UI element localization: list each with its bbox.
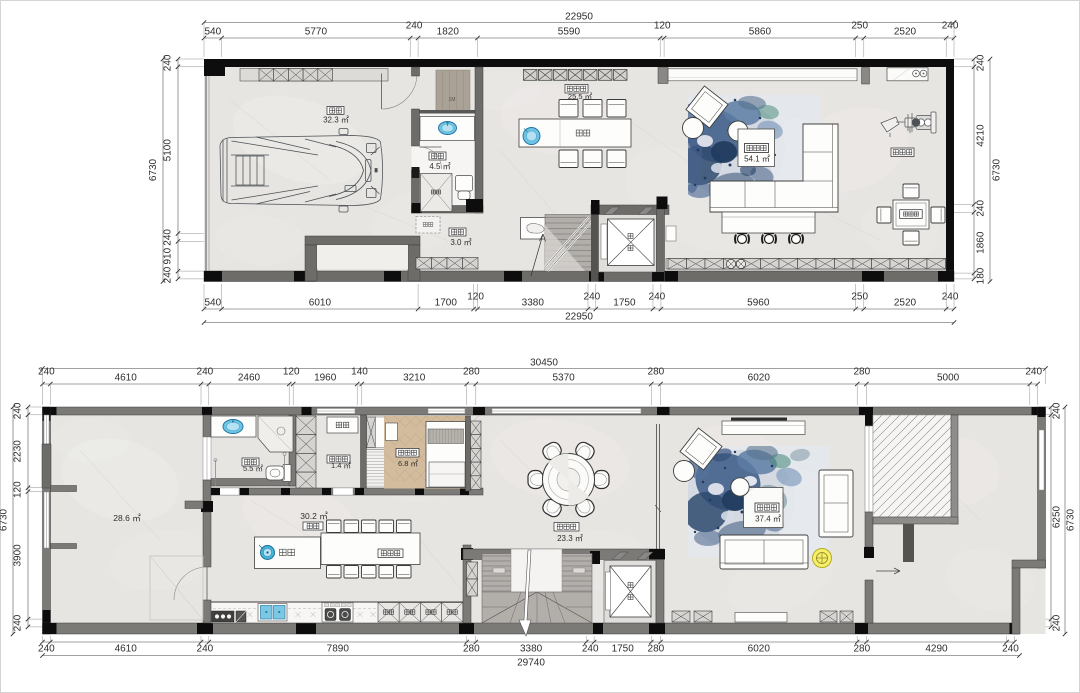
svg-text:1960: 1960	[314, 373, 337, 384]
svg-text:29740: 29740	[517, 658, 545, 669]
svg-text:280: 280	[463, 644, 480, 655]
svg-text:4210: 4210	[976, 124, 987, 147]
svg-text:4290: 4290	[925, 644, 948, 655]
svg-text:240: 240	[942, 292, 959, 303]
svg-text:28.6 ㎡: 28.6 ㎡	[113, 513, 141, 523]
svg-text:5960: 5960	[747, 298, 770, 309]
svg-text:3380: 3380	[520, 644, 543, 655]
svg-text:910: 910	[163, 247, 174, 264]
svg-text:6730: 6730	[0, 508, 10, 531]
svg-text:250: 250	[851, 21, 868, 32]
svg-text:3380: 3380	[522, 298, 545, 309]
svg-text:1M: 1M	[449, 97, 456, 103]
svg-text:240: 240	[976, 200, 987, 217]
svg-text:280: 280	[648, 644, 665, 655]
svg-text:2230: 2230	[13, 440, 24, 463]
svg-text:120: 120	[654, 21, 671, 32]
svg-text:6730: 6730	[1066, 508, 1077, 531]
svg-text:240: 240	[197, 367, 214, 378]
svg-text:3210: 3210	[403, 373, 426, 384]
svg-text:240: 240	[649, 292, 666, 303]
svg-text:240: 240	[976, 54, 987, 71]
svg-text:240: 240	[1002, 644, 1019, 655]
svg-text:280: 280	[853, 367, 870, 378]
svg-text:54.1 ㎡: 54.1 ㎡	[744, 155, 770, 164]
svg-text:240: 240	[197, 644, 214, 655]
svg-text:240: 240	[1052, 402, 1063, 419]
svg-text:240: 240	[1025, 367, 1042, 378]
svg-text:7890: 7890	[327, 644, 350, 655]
svg-text:120: 120	[467, 292, 484, 303]
svg-text:6730: 6730	[148, 158, 159, 181]
svg-text:250: 250	[851, 292, 868, 303]
svg-text:22950: 22950	[565, 12, 593, 23]
svg-text:32.3 ㎡: 32.3 ㎡	[323, 116, 349, 125]
svg-text:4610: 4610	[115, 644, 138, 655]
svg-text:5860: 5860	[749, 27, 772, 38]
svg-text:120: 120	[13, 481, 24, 498]
svg-text:1750: 1750	[612, 644, 635, 655]
svg-text:240: 240	[406, 21, 423, 32]
svg-text:280: 280	[853, 644, 870, 655]
svg-text:240: 240	[13, 402, 24, 419]
svg-text:1700: 1700	[435, 298, 458, 309]
svg-text:5000: 5000	[937, 373, 960, 384]
svg-text:4.5 ㎡: 4.5 ㎡	[429, 162, 450, 171]
svg-text:5770: 5770	[305, 27, 328, 38]
svg-text:280: 280	[463, 367, 480, 378]
svg-text:3.0 ㎡: 3.0 ㎡	[450, 238, 471, 247]
svg-text:6730: 6730	[992, 158, 1003, 181]
svg-text:240: 240	[163, 229, 174, 246]
svg-text:1750: 1750	[613, 298, 636, 309]
svg-text:240: 240	[13, 614, 24, 631]
svg-text:5.5 ㎡: 5.5 ㎡	[243, 464, 264, 473]
svg-text:2520: 2520	[894, 27, 917, 38]
svg-text:5590: 5590	[558, 27, 581, 38]
svg-text:1820: 1820	[437, 27, 460, 38]
svg-text:280: 280	[648, 367, 665, 378]
svg-text:120: 120	[283, 367, 300, 378]
svg-text:6010: 6010	[309, 298, 332, 309]
svg-text:4610: 4610	[115, 373, 138, 384]
svg-text:240: 240	[582, 644, 599, 655]
svg-text:3900: 3900	[13, 544, 24, 567]
svg-text:6250: 6250	[1052, 505, 1063, 528]
svg-text:23.3 ㎡: 23.3 ㎡	[557, 534, 583, 543]
svg-text:2460: 2460	[238, 373, 261, 384]
svg-text:1860: 1860	[976, 231, 987, 254]
svg-text:240: 240	[38, 644, 55, 655]
svg-text:37.4 ㎡: 37.4 ㎡	[755, 515, 781, 524]
svg-text:2520: 2520	[894, 298, 917, 309]
svg-text:240: 240	[38, 367, 55, 378]
svg-text:240: 240	[1052, 614, 1063, 631]
svg-text:1.4 ㎡: 1.4 ㎡	[331, 461, 352, 470]
svg-text:240: 240	[163, 54, 174, 71]
svg-text:5100: 5100	[163, 139, 174, 162]
svg-text:5370: 5370	[552, 373, 575, 384]
svg-text:6020: 6020	[748, 644, 771, 655]
svg-text:140: 140	[351, 367, 368, 378]
svg-text:540: 540	[204, 298, 221, 309]
svg-text:180: 180	[976, 267, 987, 284]
svg-text:6.8 ㎡: 6.8 ㎡	[398, 459, 419, 468]
svg-text:30.2 ㎡: 30.2 ㎡	[300, 511, 328, 521]
svg-text:540: 540	[204, 27, 221, 38]
svg-text:240: 240	[584, 292, 601, 303]
svg-text:6020: 6020	[748, 373, 771, 384]
svg-text:22950: 22950	[565, 312, 593, 323]
svg-text:240: 240	[942, 21, 959, 32]
svg-text:30450: 30450	[530, 358, 558, 369]
